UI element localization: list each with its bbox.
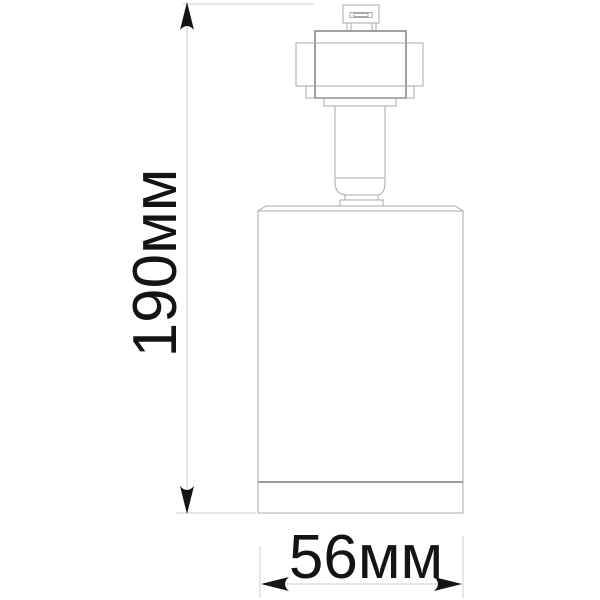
arrow-up-icon: [180, 2, 194, 30]
height-dimension-label: 190мм: [121, 169, 190, 358]
adapter-housing: [296, 31, 423, 106]
arrow-left-icon: [261, 577, 289, 591]
height-dimension: 190мм: [121, 2, 314, 514]
swivel-joint: [335, 178, 385, 206]
connector-foot-left: [347, 23, 351, 31]
joint-dome: [335, 178, 385, 195]
stem: [335, 106, 385, 178]
fixture-drawing: 190мм 56мм: [0, 0, 600, 600]
adapter-box-mid: [315, 31, 406, 98]
joint-collar: [340, 200, 383, 206]
width-dimension: 56мм: [260, 523, 463, 598]
adapter-step-upper: [306, 86, 414, 98]
drawing-canvas: 190мм 56мм: [0, 0, 600, 600]
lamp-body: [258, 206, 463, 513]
lamp-body-outline: [258, 206, 463, 513]
width-dimension-label: 56мм: [289, 523, 443, 592]
track-connector: [343, 5, 379, 31]
connector-slot-inner: [354, 14, 368, 17]
arrow-down-icon: [180, 486, 194, 514]
joint-neck: [345, 195, 378, 200]
adapter-step-lower: [324, 98, 396, 106]
connector-foot-right: [372, 23, 376, 31]
